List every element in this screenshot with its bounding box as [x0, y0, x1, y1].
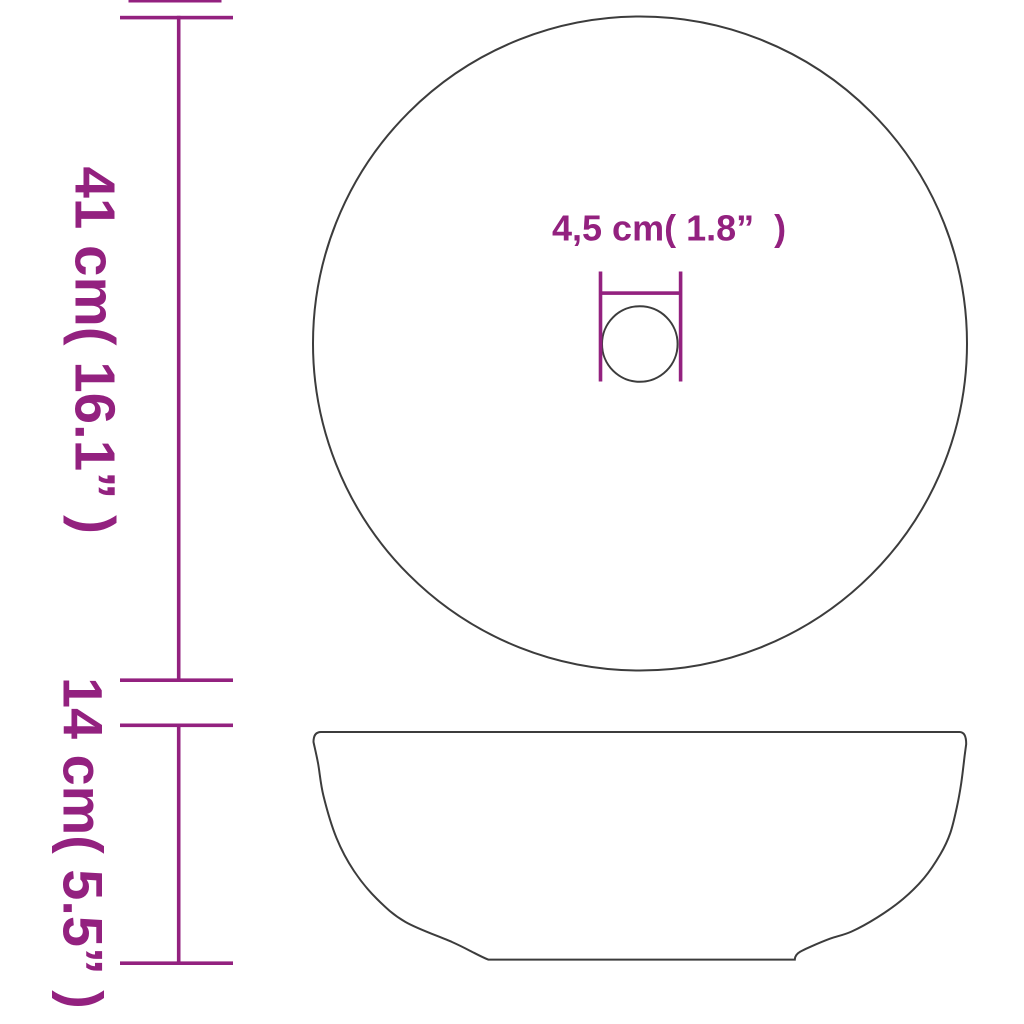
- svg-text:14 cm( 5.5” ): 14 cm( 5.5” ): [52, 677, 115, 1009]
- svg-text:4,5 cm( 1.8” ): 4,5 cm( 1.8” ): [552, 208, 786, 249]
- svg-text:41 cm( 16.1” ): 41 cm( 16.1” ): [64, 167, 127, 534]
